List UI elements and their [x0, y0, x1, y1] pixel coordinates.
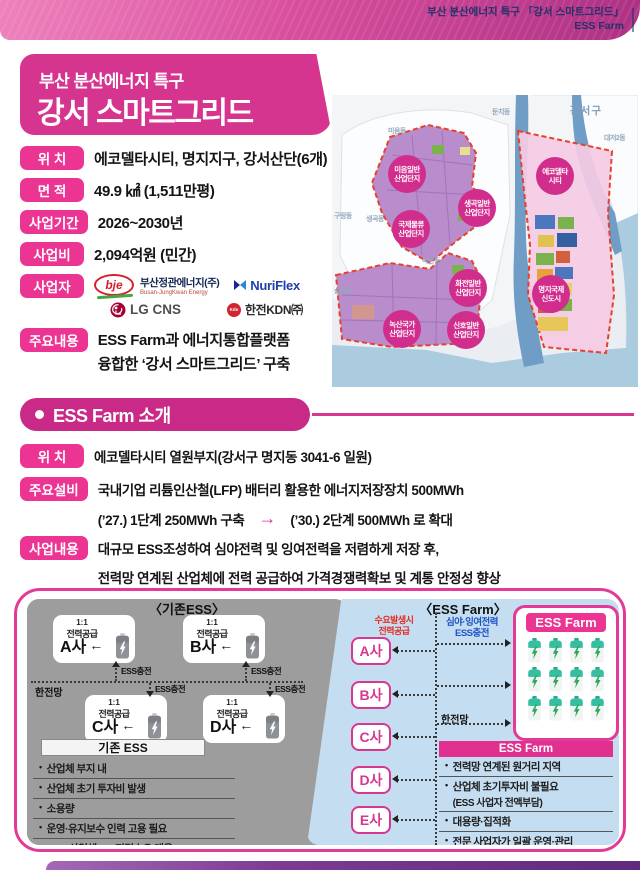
title-block: 부산 분산에너지 특구 강서 스마트그리드 — [20, 54, 332, 135]
area-value: 49.9 ㎢ (1,511만평) — [94, 180, 214, 201]
zone-label-mieum: 미음일반산업단지 — [388, 155, 426, 193]
lg-icon — [110, 302, 126, 318]
grid-line-vertical — [435, 613, 437, 845]
business-line2: 전력망 연계된 산업체에 전력 공급하여 가격경쟁력확보 및 계통 안정성 향상 — [98, 567, 501, 587]
banner-line2: ESS Farm — [427, 20, 624, 34]
battery-icon — [590, 696, 605, 721]
label-badge: 주요내용 — [20, 328, 88, 352]
zone-label-saenggok: 생곡일반산업단지 — [458, 189, 496, 227]
arrow-left-icon — [392, 815, 398, 823]
demand-label: 수요발생시 전력공급 — [361, 615, 427, 636]
lg-cns-name: LG CNS — [130, 302, 181, 317]
supply-line — [397, 819, 435, 821]
section-title: ESS Farm 소개 — [53, 402, 171, 428]
banner-divider — [632, 8, 634, 32]
town-label: 구랑동 — [334, 211, 352, 221]
list-item: 운영·유지보수 인력 고용 필요 — [33, 819, 235, 839]
bje-subname: Busan-JungKwan Energy — [140, 290, 219, 296]
battery-icon — [548, 696, 563, 721]
zone-label-sinho: 신호일반산업단지 — [447, 311, 485, 349]
content-line1: ESS Farm과 에너지통합플랫폼 — [98, 329, 290, 353]
kdn-name: 한전KDN㈜ — [245, 301, 303, 318]
battery-grid — [516, 632, 616, 727]
label-badge: 주요설비 — [20, 477, 88, 501]
battery-icon — [527, 638, 542, 663]
arrow-right-icon — [505, 681, 511, 689]
phase1: (’27.) 1단계 250MWh 구축 — [98, 509, 245, 529]
charge-line — [437, 723, 507, 725]
ess-farm-panel: 〈ESS Farm〉 수요발생시 전력공급 심야·잉여전력 ESS충전 한전망 … — [307, 599, 619, 845]
battery-icon — [590, 667, 605, 692]
content-line2: 융합한 ‘강서 스마트그리드’ 구축 — [98, 353, 290, 377]
kdn-logo: Kdn 한전KDN㈜ — [227, 301, 303, 318]
arrow-up-icon — [112, 661, 120, 667]
bje-logo-icon: bje — [94, 274, 134, 296]
farm-company-d: D사 — [351, 766, 391, 794]
intro-row-location: 위 치 에코델타시티 열원부지(강서구 명지동 3041-6 일원) — [20, 444, 372, 468]
map-graphic — [332, 95, 638, 387]
label-badge: 사업내용 — [20, 536, 88, 560]
nuriflex-name: NuriFlex — [250, 278, 300, 293]
arrow-left-icon — [392, 732, 398, 740]
zone-label-intl-logistics: 국제물류산업단지 — [392, 210, 430, 248]
arrow-up-icon — [242, 661, 250, 667]
list-item: 산업체 부지 내 — [33, 759, 235, 779]
list-item: ESS-산업체 1:1 전력수요 대응 — [33, 839, 235, 859]
left-arrow-icon: ← — [121, 717, 135, 733]
facility-value: 국내기업 리튬인산철(LFP) 배터리 활용한 에너지저장장치 500MWh (… — [98, 477, 464, 529]
arrow-right-icon: → — [258, 509, 276, 527]
section-header-line — [312, 413, 634, 416]
banner-title: 부산 분산에너지 특구 「강서 스마트그리드」 ESS Farm — [427, 6, 624, 33]
zone-label-ecodelta: 에코델타시티 — [536, 157, 574, 195]
farm-company-a: A사 — [351, 637, 391, 665]
town-label: 송정동 — [334, 286, 352, 296]
battery-icon — [115, 633, 130, 659]
kdn-icon: Kdn — [227, 303, 241, 317]
label-badge: 면 적 — [20, 178, 84, 202]
battery-icon — [527, 667, 542, 692]
section-header-ess-farm: ESS Farm 소개 — [20, 398, 310, 431]
period-value: 2026~2030년 — [98, 212, 183, 233]
ess-farm-badge: ESS Farm — [526, 613, 606, 632]
battery-icon — [548, 667, 563, 692]
overview-row-area: 면 적 49.9 ㎢ (1,511만평) — [20, 178, 214, 202]
business-line1: 대규모 ESS조성하여 심야전력 및 잉여전력을 저렴하게 저장 후, — [98, 538, 501, 558]
overview-row-content: 주요내용 ESS Farm과 에너지통합플랫폼 융합한 ‘강서 스마트그리드’ … — [20, 328, 290, 377]
arrow-right-icon — [505, 719, 511, 727]
battery-icon — [147, 713, 162, 739]
main-content: ESS Farm과 에너지통합플랫폼 융합한 ‘강서 스마트그리드’ 구축 — [98, 329, 290, 377]
phase2: (’30.) 2단계 500MWh 로 확대 — [290, 509, 452, 529]
banner-line1: 부산 분산에너지 특구 「강서 스마트그리드」 — [427, 6, 624, 20]
supply-line — [397, 736, 435, 738]
label-badge: 사업자 — [20, 274, 84, 298]
list-item: 전력망 연계된 원거리 지역 — [439, 757, 613, 777]
page-title: 강서 스마트그리드 — [37, 88, 253, 132]
business-value: 대규모 ESS조성하여 심야전력 및 잉여전력을 저렴하게 저장 후, 전력망 … — [98, 536, 501, 587]
comparison-diagram: 〈기존ESS〉 1:1 전력공급 A사← 1:1 전력공급 B사← 1:1 전력… — [14, 588, 626, 852]
nuriflex-logo: NuriFlex — [233, 278, 300, 293]
overview-row-operators: 사업자 bje 부산정관에너지(주) Busan-JungKwan Energy… — [20, 274, 303, 318]
facility-line1: 국내기업 리튬인산철(LFP) 배터리 활용한 에너지저장장치 500MWh — [98, 479, 464, 499]
logo-row-2: LG CNS Kdn 한전KDN㈜ — [94, 301, 303, 318]
top-banner: 부산 분산에너지 특구 「강서 스마트그리드」 ESS Farm — [0, 0, 640, 40]
charge-line-b — [245, 665, 247, 681]
arrow-right-icon — [505, 639, 511, 647]
bullet-dot-icon — [35, 410, 44, 419]
nuriflex-icon — [233, 279, 247, 291]
battery-icon — [245, 633, 260, 659]
town-label: 미음동 — [388, 126, 406, 136]
farm-company-b: B사 — [351, 681, 391, 709]
list-item: 소용량 — [33, 799, 235, 819]
battery-icon — [569, 638, 584, 663]
label-badge: 위 치 — [20, 444, 84, 468]
battery-icon — [569, 667, 584, 692]
arrow-left-icon — [392, 775, 398, 783]
operator-logos: bje 부산정관에너지(주) Busan-JungKwan Energy Nur… — [94, 274, 303, 318]
district-label: 강서구 — [570, 103, 602, 118]
zone-label-noksan: 녹산국가산업단지 — [383, 310, 421, 348]
existing-ess-panel: 〈기존ESS〉 1:1 전력공급 A사← 1:1 전력공급 B사← 1:1 전력… — [27, 599, 347, 845]
town-label: 생곡동 — [366, 214, 384, 224]
arrow-left-icon — [392, 690, 398, 698]
lg-cns-logo: LG CNS — [110, 302, 181, 318]
bje-company: 부산정관에너지(주) Busan-JungKwan Energy — [140, 275, 219, 296]
list-item: 산업체 초기투자비 불필요 (ESS 사업자 전액부담) — [439, 777, 613, 812]
ess-farm-box: ESS Farm — [513, 605, 619, 741]
arrow-left-icon — [392, 646, 398, 654]
charge-line — [437, 685, 507, 687]
arrow-down-icon — [146, 691, 154, 697]
logo-row-1: bje 부산정관에너지(주) Busan-JungKwan Energy Nur… — [94, 274, 303, 296]
company-box-c: 1:1 전력공급 C사← — [85, 695, 167, 743]
town-label: 둔치동 — [492, 107, 510, 117]
bje-name: 부산정관에너지(주) — [140, 275, 219, 290]
zone-label-hwajeon: 화전일반산업단지 — [449, 269, 487, 307]
night-charge-label: 심야·잉여전력 ESS충전 — [439, 617, 505, 639]
grid-label: 한전망 — [35, 684, 63, 699]
intro-row-business: 사업내용 대규모 ESS조성하여 심야전력 및 잉여전력을 저렴하게 저장 후,… — [20, 536, 500, 587]
town-label: 녹산동 — [422, 256, 440, 266]
label-badge: 사업기간 — [20, 210, 88, 234]
budget-value: 2,094억원 (민간) — [94, 244, 196, 265]
left-arrow-icon: ← — [219, 637, 233, 653]
location-value: 에코델타시티, 명지지구, 강서산단(6개) — [94, 148, 327, 169]
farm-company-c: C사 — [351, 723, 391, 751]
battery-icon — [527, 696, 542, 721]
zone-label-myeongji: 명지국제신도시 — [532, 275, 570, 313]
charge-line-a — [115, 665, 117, 681]
bottom-banner — [46, 861, 640, 870]
farm-list-header: ESS Farm — [439, 741, 613, 757]
zone-map: 강서구 미음동 둔치동 대저2동 구랑동 생곡동 녹산동 송정동 미음일반산업단… — [332, 95, 638, 387]
overview-row-budget: 사업비 2,094억원 (민간) — [20, 242, 196, 266]
farm-company-e: E사 — [351, 806, 391, 834]
battery-icon — [569, 696, 584, 721]
list-item: 전문 사업자가 일괄 운영·관리 — [439, 832, 613, 852]
battery-icon — [265, 713, 280, 739]
label-badge: 위 치 — [20, 146, 84, 170]
list-item: 대용량·집적화 — [439, 812, 613, 832]
left-arrow-icon: ← — [239, 717, 253, 733]
company-box-b: 1:1 전력공급 B사← — [183, 615, 265, 663]
supply-line — [397, 779, 435, 781]
farm-list: 전력망 연계된 원거리 지역 산업체 초기투자비 불필요 (ESS 사업자 전액… — [439, 757, 613, 872]
supply-line — [397, 694, 435, 696]
charge-line — [437, 643, 507, 645]
supply-line — [397, 650, 435, 652]
facility-phases: (’27.) 1단계 250MWh 구축 → (’30.) 2단계 500MWh… — [98, 507, 464, 529]
existing-list-header: 기존 ESS — [41, 739, 205, 756]
battery-icon — [590, 638, 605, 663]
arrow-down-icon — [266, 691, 274, 697]
intro-location-value: 에코델타시티 열원부지(강서구 명지동 3041-6 일원) — [94, 446, 372, 466]
intro-row-facility: 주요설비 국내기업 리튬인산철(LFP) 배터리 활용한 에너지저장장치 500… — [20, 477, 464, 529]
label-badge: 사업비 — [20, 242, 84, 266]
overview-row-location: 위 치 에코델타시티, 명지지구, 강서산단(6개) — [20, 146, 327, 170]
left-arrow-icon: ← — [89, 637, 103, 653]
existing-list: 산업체 부지 내 산업체 초기 투자비 발생 소용량 운영·유지보수 인력 고용… — [33, 759, 235, 859]
town-label: 대저2동 — [604, 133, 625, 143]
battery-icon — [548, 638, 563, 663]
company-box-a: 1:1 전력공급 A사← — [53, 615, 135, 663]
company-box-d: 1:1 전력공급 D사← — [203, 695, 285, 743]
overview-row-period: 사업기간 2026~2030년 — [20, 210, 183, 234]
list-item: 산업체 초기 투자비 발생 — [33, 779, 235, 799]
